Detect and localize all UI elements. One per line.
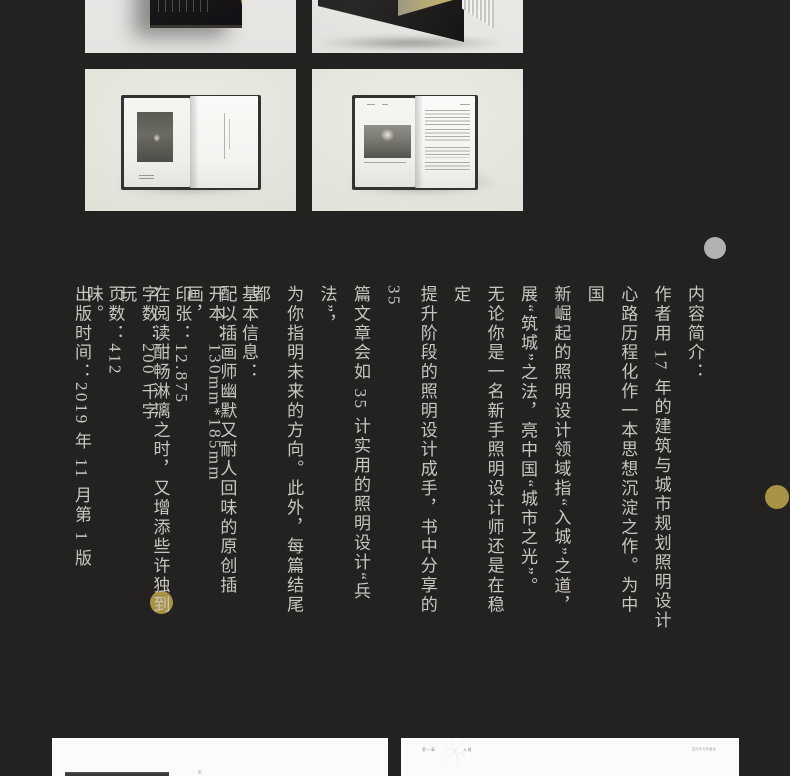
basic-info-line-sheets: 印张：12.875 [165, 285, 198, 631]
building-photo-on-left-page [364, 125, 411, 158]
photo-caption-lines [139, 175, 154, 179]
content-intro-line: 无论你是一名新手照明设计师还是在稳定 [444, 285, 511, 631]
asterisk-mark: ✳ [197, 769, 202, 776]
night-photo-on-left-page [137, 112, 173, 162]
content-intro-heading: 内容简介： [678, 285, 711, 631]
spine-shadow [190, 96, 199, 188]
book-ground-shadow [316, 36, 504, 50]
cover-vertical-text-texture [158, 0, 211, 12]
book-cover-photo [150, 0, 242, 25]
gallery-image-page-sample-right[interactable]: 第一章 入城 空间与光影规划 [401, 738, 739, 776]
text-paragraph [425, 110, 470, 125]
content-intro-line: 篇文章会如 35 计实用的照明设计“兵法”， [310, 285, 377, 631]
basic-info-heading: 基本信息： [232, 285, 265, 631]
page-header-mark [382, 104, 388, 105]
cover-bottom-edge [150, 25, 242, 28]
gallery-image-page-sample-left[interactable]: ✳ [52, 738, 388, 776]
photo-caption-line [364, 162, 406, 163]
content-intro-line: 心路历程化作一本思想沉淀之作。为中国 [577, 285, 644, 631]
gallery-image-open-book-right[interactable] [312, 69, 523, 211]
basic-info-line-format: 开本：130mm*185mm [198, 285, 231, 631]
fanned-pages [462, 0, 494, 37]
chapter-title-label: 入城 [463, 747, 472, 753]
page-header-mark [367, 104, 375, 105]
text-paragraph [425, 129, 470, 143]
gallery-image-book-cover[interactable] [85, 0, 296, 53]
dark-image-strip [65, 772, 169, 776]
content-intro-line: 展“筑城”之法，亮中国“城市之光”。 [511, 285, 544, 631]
sketch-doodle [445, 738, 465, 764]
basic-info-line-pages: 页数：412 [98, 285, 131, 631]
basic-info-line-pubdate: 出版时间：2019 年 11 月第 1 版 [65, 285, 98, 631]
text-paragraph [425, 162, 470, 172]
content-intro-line: 新崛起的照明设计领域指“入城”之道， [544, 285, 577, 631]
decor-dot-gray [704, 237, 726, 259]
basic-info-section: 基本信息： 开本：130mm*185mm 印张：12.875 字数：200 千字… [65, 285, 265, 635]
book-detail-page: 内容简介： 作者用 17 年的建筑与城市规划照明设计 心路历程化作一本思想沉淀之… [0, 0, 790, 776]
gallery-image-open-book-left[interactable] [85, 69, 296, 211]
vertical-text-line [224, 113, 225, 159]
chapter-number-label: 第一章 [422, 747, 436, 753]
running-header-label: 空间与光影规划 [692, 747, 716, 751]
spine-shadow [415, 96, 423, 188]
gallery-image-book-fanned[interactable] [312, 0, 523, 53]
vertical-text-line [229, 119, 230, 149]
decor-dot-gold-right [765, 485, 789, 509]
content-intro-line: 作者用 17 年的建筑与城市规划照明设计 [644, 285, 677, 631]
text-paragraph [425, 147, 470, 158]
page-header-mark [460, 104, 470, 105]
content-intro-line: 提升阶段的照明设计成手，书中分享的 35 [377, 285, 444, 631]
basic-info-line-wordcount: 字数：200 千字 [131, 285, 164, 631]
